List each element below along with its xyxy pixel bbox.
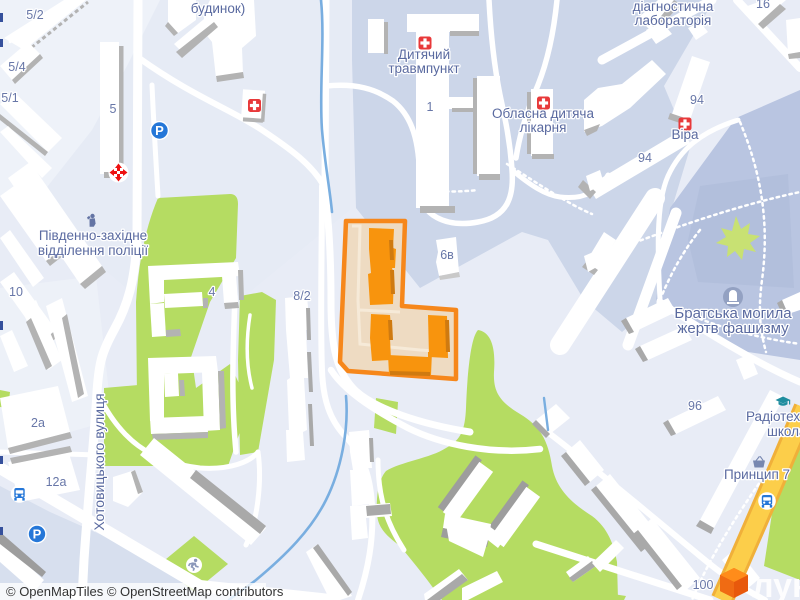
svg-text:відділення поліції: відділення поліції [38, 243, 148, 258]
svg-text:Південно-західне: Південно-західне [39, 228, 147, 243]
svg-text:травмпункт: травмпункт [388, 61, 459, 76]
svg-text:96: 96 [688, 399, 702, 413]
svg-text:будинок): будинок) [191, 1, 246, 16]
svg-text:Дитячий: Дитячий [398, 47, 450, 62]
svg-text:5: 5 [110, 102, 117, 116]
svg-text:жертв фашизму: жертв фашизму [677, 320, 789, 337]
svg-text:5/2: 5/2 [26, 8, 43, 22]
svg-text:16: 16 [756, 0, 770, 11]
svg-text:100: 100 [693, 578, 714, 592]
svg-text:6в: 6в [440, 248, 454, 262]
svg-text:8/2: 8/2 [293, 289, 310, 303]
svg-text:Хотовицького вулиця: Хотовицького вулиця [91, 393, 107, 530]
svg-text:94: 94 [690, 93, 704, 107]
svg-text:лікарня: лікарня [520, 120, 567, 135]
svg-text:10: 10 [9, 285, 23, 299]
svg-text:школа: школа [767, 424, 800, 439]
svg-text:94: 94 [638, 151, 652, 165]
svg-text:12а: 12а [46, 475, 67, 489]
svg-text:1: 1 [427, 100, 434, 114]
svg-text:Принцип 7: Принцип 7 [724, 467, 790, 482]
svg-text:лабораторія: лабораторія [635, 13, 712, 28]
svg-text:діагностична: діагностична [633, 0, 714, 14]
svg-text:Віра: Віра [671, 127, 699, 142]
svg-text:© OpenMapTiles © OpenStreetMap: © OpenMapTiles © OpenStreetMap contribut… [6, 584, 284, 599]
svg-text:Радіотехнічна: Радіотехнічна [746, 409, 800, 424]
svg-text:2а: 2а [31, 416, 45, 430]
svg-text:4: 4 [209, 285, 216, 299]
svg-text:5/4: 5/4 [8, 60, 25, 74]
svg-text:5/1: 5/1 [1, 91, 18, 105]
svg-text:лун: лун [752, 567, 800, 600]
svg-text:Обласна дитяча: Обласна дитяча [492, 106, 594, 121]
